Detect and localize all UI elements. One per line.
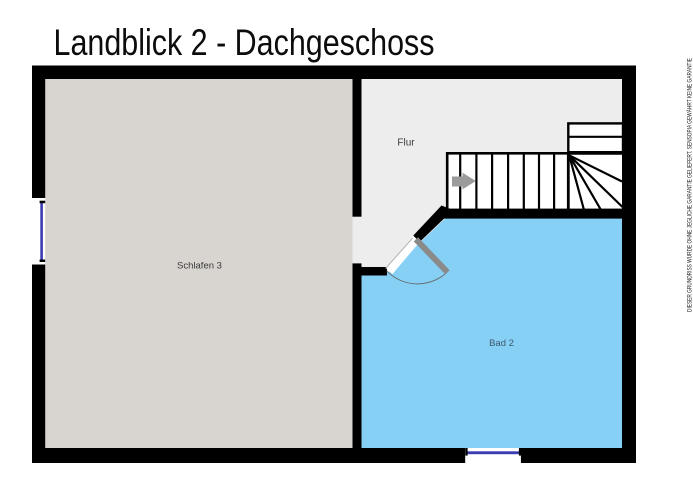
svg-text:DIESER GRUNDRISS WURDE OHNE JE: DIESER GRUNDRISS WURDE OHNE JEGLICHE GAR…	[687, 58, 693, 312]
svg-text:Flur: Flur	[397, 138, 415, 149]
svg-text:Bad 2: Bad 2	[489, 338, 514, 349]
svg-text:Schlafen 3: Schlafen 3	[177, 261, 222, 272]
svg-text:Landblick 2 - Dachgeschoss: Landblick 2 - Dachgeschoss	[54, 22, 435, 63]
